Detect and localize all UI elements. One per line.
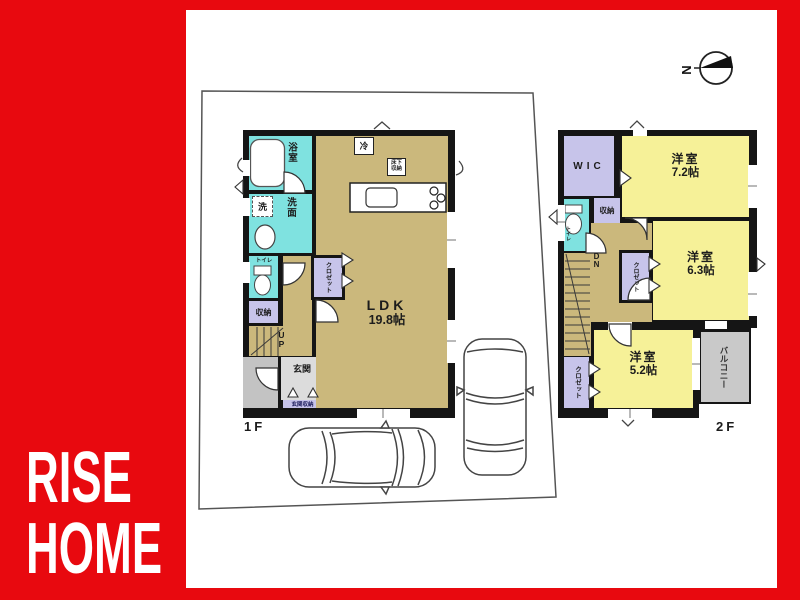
compass-icon: N [679,52,733,84]
car-vertical [457,339,533,475]
label-bed-72: 洋室 7.2帖 [622,153,749,180]
label-underfloor: 床下 収納 [387,160,406,172]
label-2f: 2F [716,419,737,434]
kitchen-counter [350,183,446,212]
label-entrance: 玄関 [281,360,323,376]
label-washroom: 洗面 [283,197,297,218]
label-ldk: LDK 19.8帖 [330,297,444,327]
label-storage-2f: 収納 [594,198,620,223]
label-bed-52: 洋室 5.2帖 [594,351,693,378]
svg-text:N: N [679,65,694,74]
car-horizontal [289,421,435,494]
washbasin [255,225,275,249]
label-entrance-storage: 玄関収納 [283,400,322,408]
label-stairs-up: UP [276,331,287,349]
toilet-1f-fixture [254,266,271,295]
label-toilet-1f: トイレ [249,256,279,264]
label-closet-63: クロゼット [622,253,649,300]
label-wic: WIC [564,136,614,196]
label-toilet-2f: トイレ [565,226,572,241]
label-closet-52: クロゼット [564,357,589,408]
label-closet-1f: クロゼット [314,258,342,297]
flyer-poster: RISE HOME 浴室 洗 洗面 トイレ 収納 [0,0,800,600]
label-1f: 1F [244,419,265,434]
label-washer: 洗 [252,196,273,217]
label-stairs-dn: DN [591,253,602,270]
label-storage-1f: 収納 [249,301,278,323]
label-bed-63: 洋室 6.3帖 [653,251,749,278]
label-balcony: バルコニー [699,332,749,402]
bathtub [251,140,285,187]
label-bath: 浴室 [284,142,298,163]
label-fridge: 冷 [354,137,374,155]
stairs-2f-treads [565,254,590,354]
